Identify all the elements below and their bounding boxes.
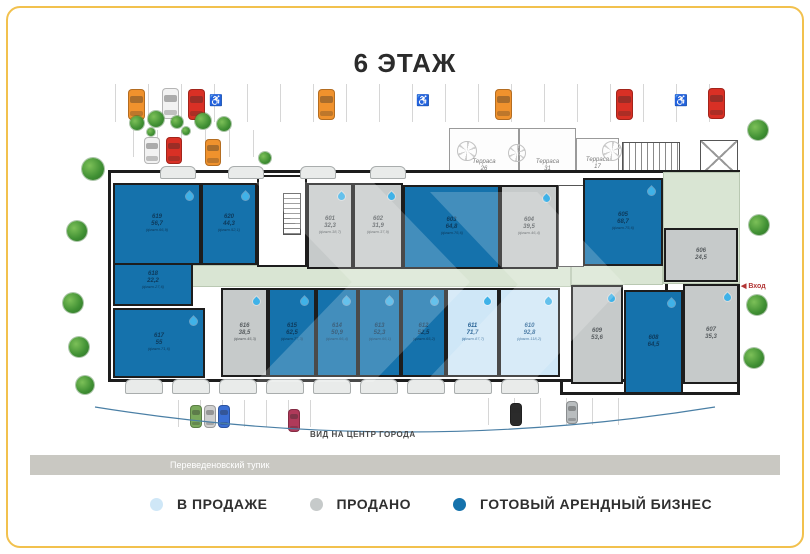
legend: В ПРОДАЖЕПРОДАНОГОТОВЫЙ АРЕНДНЫЙ БИЗНЕС bbox=[150, 496, 712, 512]
water-drop-icon bbox=[723, 293, 733, 303]
water-drop-icon bbox=[483, 297, 493, 307]
water-drop-icon bbox=[342, 297, 352, 307]
parking-line bbox=[544, 84, 545, 122]
tree-icon bbox=[171, 116, 183, 128]
parking-line bbox=[229, 130, 230, 157]
parking-line bbox=[181, 84, 182, 122]
water-drop-icon bbox=[607, 294, 617, 304]
unit-620[interactable]: 62044,3(факт.52,1) bbox=[201, 183, 257, 265]
water-drop-icon bbox=[387, 192, 397, 202]
corridor-green bbox=[571, 265, 663, 285]
unit-602[interactable]: 60231,9(факт.37,9) bbox=[353, 183, 403, 269]
tree-icon bbox=[744, 348, 764, 368]
unit-label: 61450,9(факт.66,4) bbox=[323, 323, 351, 343]
unit-label: 61638,5(факт.45,3) bbox=[231, 323, 259, 343]
unit-label: 61092,8(факт.118,2) bbox=[514, 323, 544, 343]
car-icon bbox=[144, 137, 160, 164]
water-drop-icon bbox=[189, 317, 199, 327]
unit-615[interactable]: 61562,5(факт.77,3) bbox=[268, 288, 316, 377]
page-title: 6 ЭТАЖ bbox=[0, 48, 810, 79]
car-icon bbox=[205, 139, 221, 166]
parking-line bbox=[445, 84, 446, 122]
unit-603[interactable]: 60364,8(факт.76,6) bbox=[403, 185, 500, 269]
water-drop-icon bbox=[544, 297, 554, 307]
water-drop-icon bbox=[300, 297, 310, 307]
ceiling-fan-icon bbox=[508, 144, 526, 162]
unit-617[interactable]: 61755(факт.71,6) bbox=[113, 308, 205, 378]
tree-icon bbox=[147, 128, 155, 136]
tree-icon bbox=[747, 295, 767, 315]
parking-line bbox=[643, 84, 644, 122]
unit-label: 60231,9(факт.37,9) bbox=[364, 216, 392, 236]
unit-label: 61755(факт.71,6) bbox=[145, 333, 173, 353]
unit-612[interactable]: 61252,5(факт.65,2) bbox=[401, 288, 446, 377]
legend-label: В ПРОДАЖЕ bbox=[177, 496, 268, 512]
tree-icon bbox=[195, 113, 211, 129]
unit-label: 61171,7(факт.87,7) bbox=[459, 323, 487, 343]
parking-line bbox=[379, 84, 380, 122]
unit-609[interactable]: 60953,6 bbox=[571, 285, 623, 384]
unit-label: 61562,5(факт.77,3) bbox=[278, 323, 306, 343]
unit-607[interactable]: 60735,3 bbox=[683, 284, 739, 384]
unit-label: 60953,6 bbox=[591, 328, 603, 342]
entrance-label: ◀ Вход bbox=[741, 282, 766, 290]
unit-606[interactable]: 60624,5 bbox=[664, 228, 738, 282]
unit-label: 60735,3 bbox=[705, 327, 717, 341]
tree-icon bbox=[82, 158, 104, 180]
view-label: ВИД НА ЦЕНТР ГОРОДА bbox=[310, 430, 416, 439]
car-icon bbox=[162, 88, 179, 119]
unit-608[interactable]: 60864,5 bbox=[624, 290, 683, 394]
tree-icon bbox=[76, 376, 94, 394]
balcony bbox=[228, 166, 264, 179]
balcony bbox=[219, 379, 257, 394]
tree-icon bbox=[259, 152, 271, 164]
parking-line bbox=[478, 84, 479, 122]
balcony bbox=[454, 379, 492, 394]
balcony bbox=[266, 379, 304, 394]
car-icon bbox=[708, 88, 725, 119]
tree-icon bbox=[130, 116, 144, 130]
inner-stairs bbox=[283, 193, 301, 235]
unit-label: 61956,7(факт.66,9) bbox=[143, 214, 171, 234]
water-drop-icon bbox=[337, 192, 347, 202]
unit-label: 60568,7(факт.75,6) bbox=[609, 212, 637, 232]
tree-icon bbox=[63, 293, 83, 313]
tree-icon bbox=[69, 337, 89, 357]
parking-line bbox=[412, 84, 413, 122]
legend-dot-rent bbox=[453, 498, 466, 511]
floor-plan-page: 6 ЭТАЖ ♿♿♿Терраса26Терраса31Терраса17601… bbox=[0, 0, 810, 554]
tree-icon bbox=[748, 120, 768, 140]
legend-dot-sold bbox=[310, 498, 323, 511]
unit-label: 61252,5(факт.65,2) bbox=[410, 323, 438, 343]
parking-line bbox=[253, 130, 254, 157]
unit-label: 60364,8(факт.76,6) bbox=[438, 217, 466, 237]
unit-label: 60864,5 bbox=[648, 335, 660, 349]
unit-610[interactable]: 61092,8(факт.118,2) bbox=[499, 288, 560, 377]
tree-icon bbox=[217, 117, 231, 131]
water-drop-icon bbox=[385, 297, 395, 307]
balcony bbox=[360, 379, 398, 394]
legend-item-sale: В ПРОДАЖЕ bbox=[150, 496, 268, 512]
water-drop-icon bbox=[647, 187, 657, 197]
legend-item-sold: ПРОДАНО bbox=[310, 496, 412, 512]
tree-icon bbox=[148, 111, 164, 127]
parking-line bbox=[313, 84, 314, 122]
tree-icon bbox=[749, 215, 769, 235]
unit-label: 61352,3(факт.66,1) bbox=[366, 323, 394, 343]
water-drop-icon bbox=[252, 297, 262, 307]
balcony bbox=[407, 379, 445, 394]
unit-label: 60132,3(факт.38,7) bbox=[316, 216, 344, 236]
parking-line bbox=[247, 84, 248, 122]
balcony bbox=[370, 166, 406, 179]
car-icon bbox=[495, 89, 512, 120]
elevator-shaft bbox=[558, 185, 584, 267]
parking-line bbox=[280, 84, 281, 122]
water-drop-icon bbox=[430, 297, 440, 307]
balcony bbox=[160, 166, 196, 179]
unit-label: 62044,3(факт.52,1) bbox=[215, 214, 243, 234]
ceiling-fan-icon bbox=[602, 141, 622, 161]
parking-line bbox=[610, 84, 611, 122]
water-drop-icon bbox=[241, 192, 251, 202]
unit-601[interactable]: 60132,3(факт.38,7) bbox=[307, 183, 353, 269]
unit-604[interactable]: 60439,5(факт.46,4) bbox=[500, 185, 558, 269]
unit-614[interactable]: 61450,9(факт.66,4) bbox=[316, 288, 358, 377]
handicap-icon: ♿ bbox=[209, 94, 223, 107]
water-drop-icon bbox=[185, 192, 195, 202]
unit-label: 61822,2(факт.27,6) bbox=[139, 271, 167, 291]
car-icon bbox=[616, 89, 633, 120]
unit-611[interactable]: 61171,7(факт.87,7) bbox=[446, 288, 499, 377]
parking-line bbox=[577, 84, 578, 122]
street-band: Переведеновский тупик bbox=[30, 455, 780, 475]
parking-line bbox=[115, 84, 116, 122]
street-name: Переведеновский тупик bbox=[170, 460, 269, 470]
unit-613[interactable]: 61352,3(факт.66,1) bbox=[358, 288, 401, 377]
balcony bbox=[313, 379, 351, 394]
unit-label: 60624,5 bbox=[695, 248, 707, 262]
legend-label: ПРОДАНО bbox=[337, 496, 412, 512]
handicap-icon: ♿ bbox=[674, 94, 688, 107]
legend-label: ГОТОВЫЙ АРЕНДНЫЙ БИЗНЕС bbox=[480, 496, 712, 512]
unit-616[interactable]: 61638,5(факт.45,3) bbox=[221, 288, 268, 377]
unit-label: 60439,5(факт.46,4) bbox=[515, 217, 543, 237]
unit-619[interactable]: 61956,7(факт.66,9) bbox=[113, 183, 201, 265]
water-drop-icon bbox=[667, 299, 677, 309]
balcony bbox=[300, 166, 336, 179]
legend-item-rent: ГОТОВЫЙ АРЕНДНЫЙ БИЗНЕС bbox=[453, 496, 712, 512]
car-icon bbox=[166, 137, 182, 164]
balcony bbox=[501, 379, 539, 394]
parking-line bbox=[346, 84, 347, 122]
car-icon bbox=[318, 89, 335, 120]
balcony bbox=[125, 379, 163, 394]
parking-line bbox=[133, 130, 134, 157]
legend-dot-sale bbox=[150, 498, 163, 511]
ceiling-fan-icon bbox=[457, 141, 477, 161]
unit-605[interactable]: 60568,7(факт.75,6) bbox=[583, 178, 663, 266]
handicap-icon: ♿ bbox=[416, 94, 430, 107]
water-drop-icon bbox=[542, 194, 552, 204]
balcony bbox=[172, 379, 210, 394]
tree-icon bbox=[67, 221, 87, 241]
tree-icon bbox=[182, 127, 190, 135]
